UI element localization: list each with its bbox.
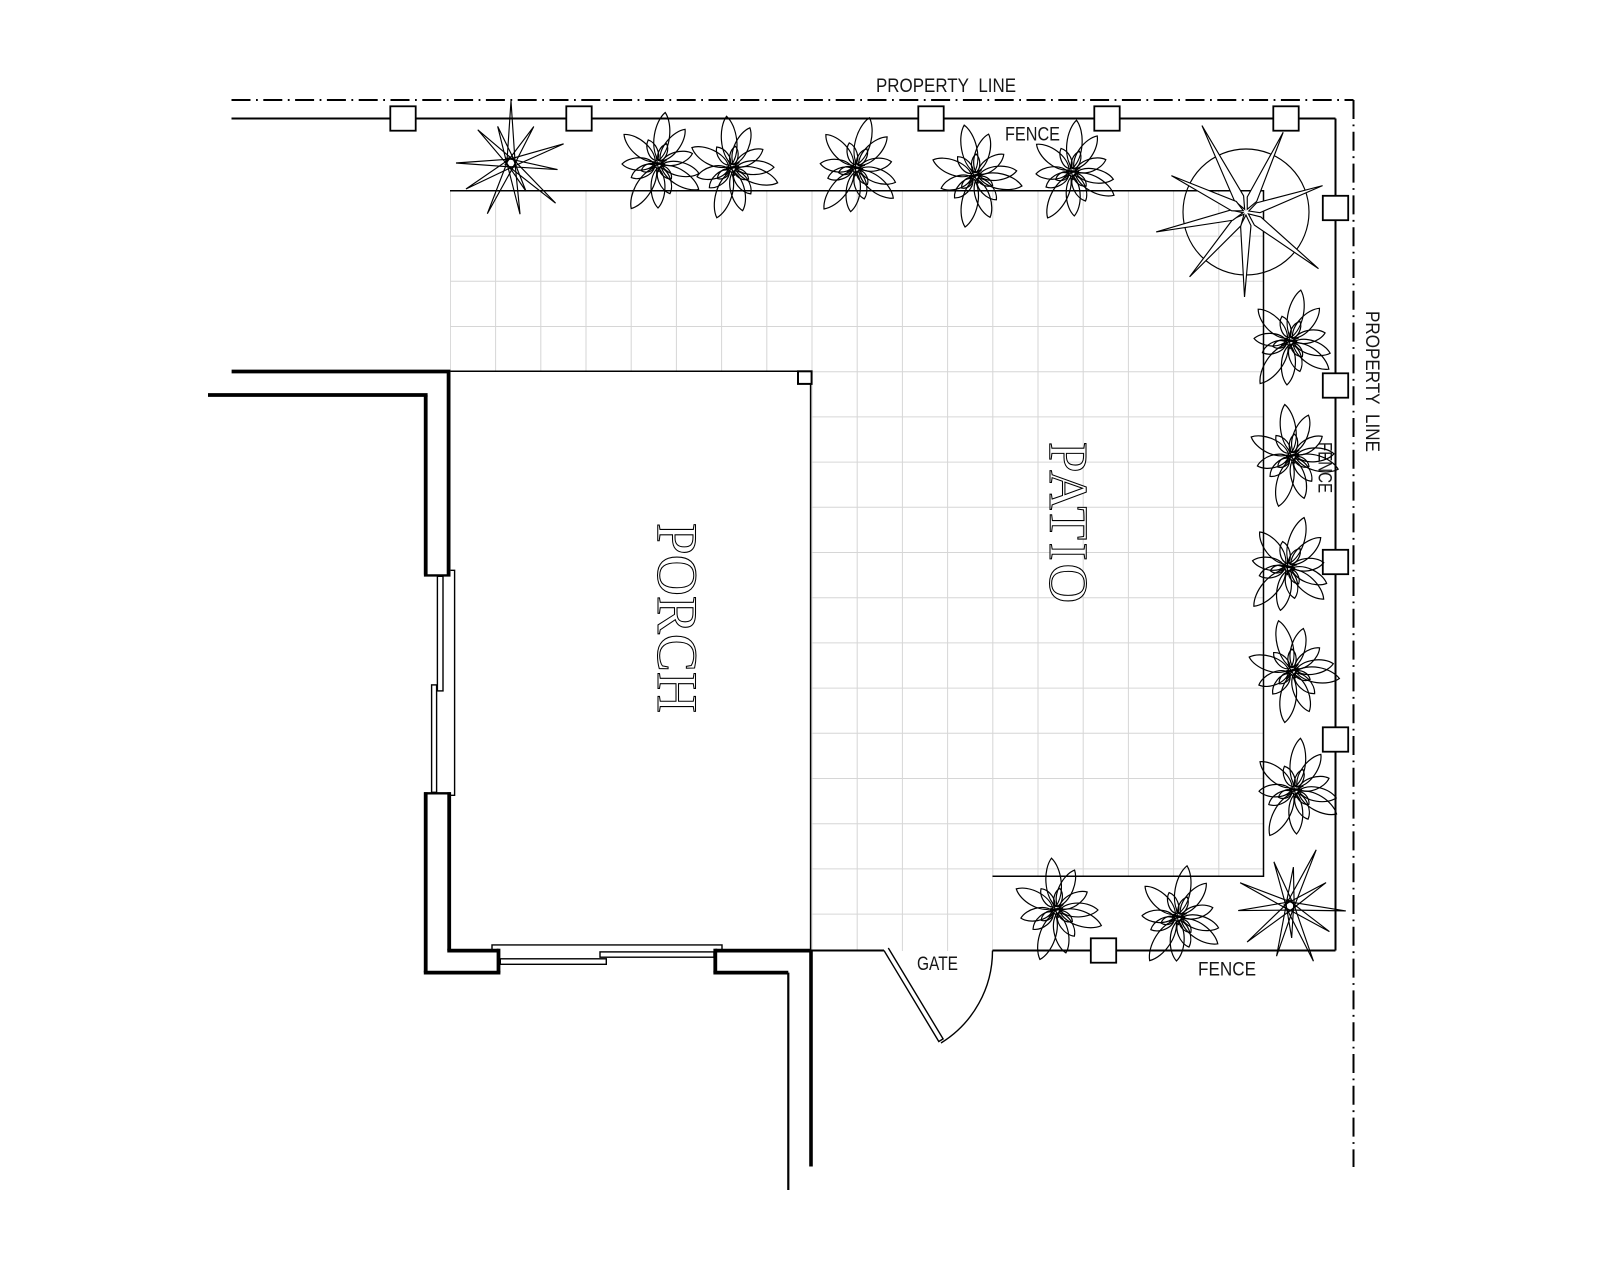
- svg-text:FENCE: FENCE: [1314, 442, 1335, 493]
- svg-text:FENCE: FENCE: [1005, 125, 1060, 146]
- svg-text:GATE: GATE: [917, 954, 958, 975]
- svg-text:PROPERTY LINE: PROPERTY LINE: [876, 76, 1016, 97]
- svg-text:FENCE: FENCE: [1198, 960, 1256, 981]
- svg-text:PROPERTY LINE: PROPERTY LINE: [1361, 311, 1382, 452]
- svg-text:PORCH: PORCH: [645, 523, 708, 713]
- svg-text:PATIO: PATIO: [1038, 442, 1099, 606]
